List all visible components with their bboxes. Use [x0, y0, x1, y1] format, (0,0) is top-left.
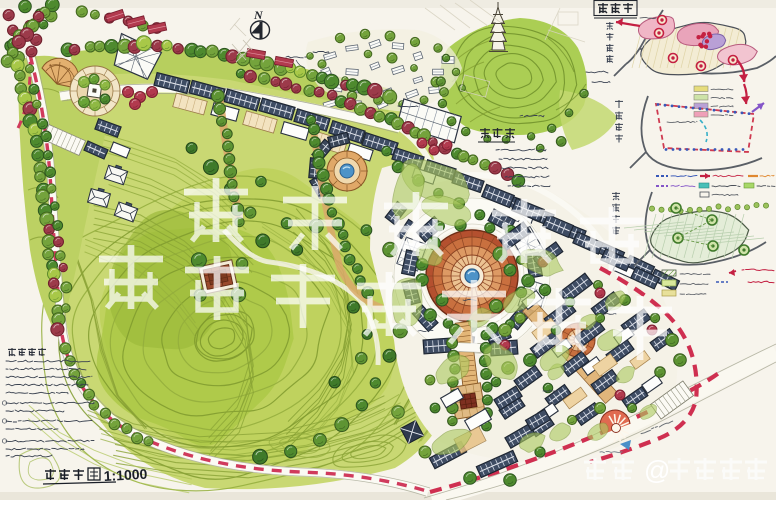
- svg-text:1:1000: 1:1000: [103, 466, 148, 484]
- svg-text:N: N: [253, 8, 264, 22]
- svg-text:@: @: [644, 455, 670, 485]
